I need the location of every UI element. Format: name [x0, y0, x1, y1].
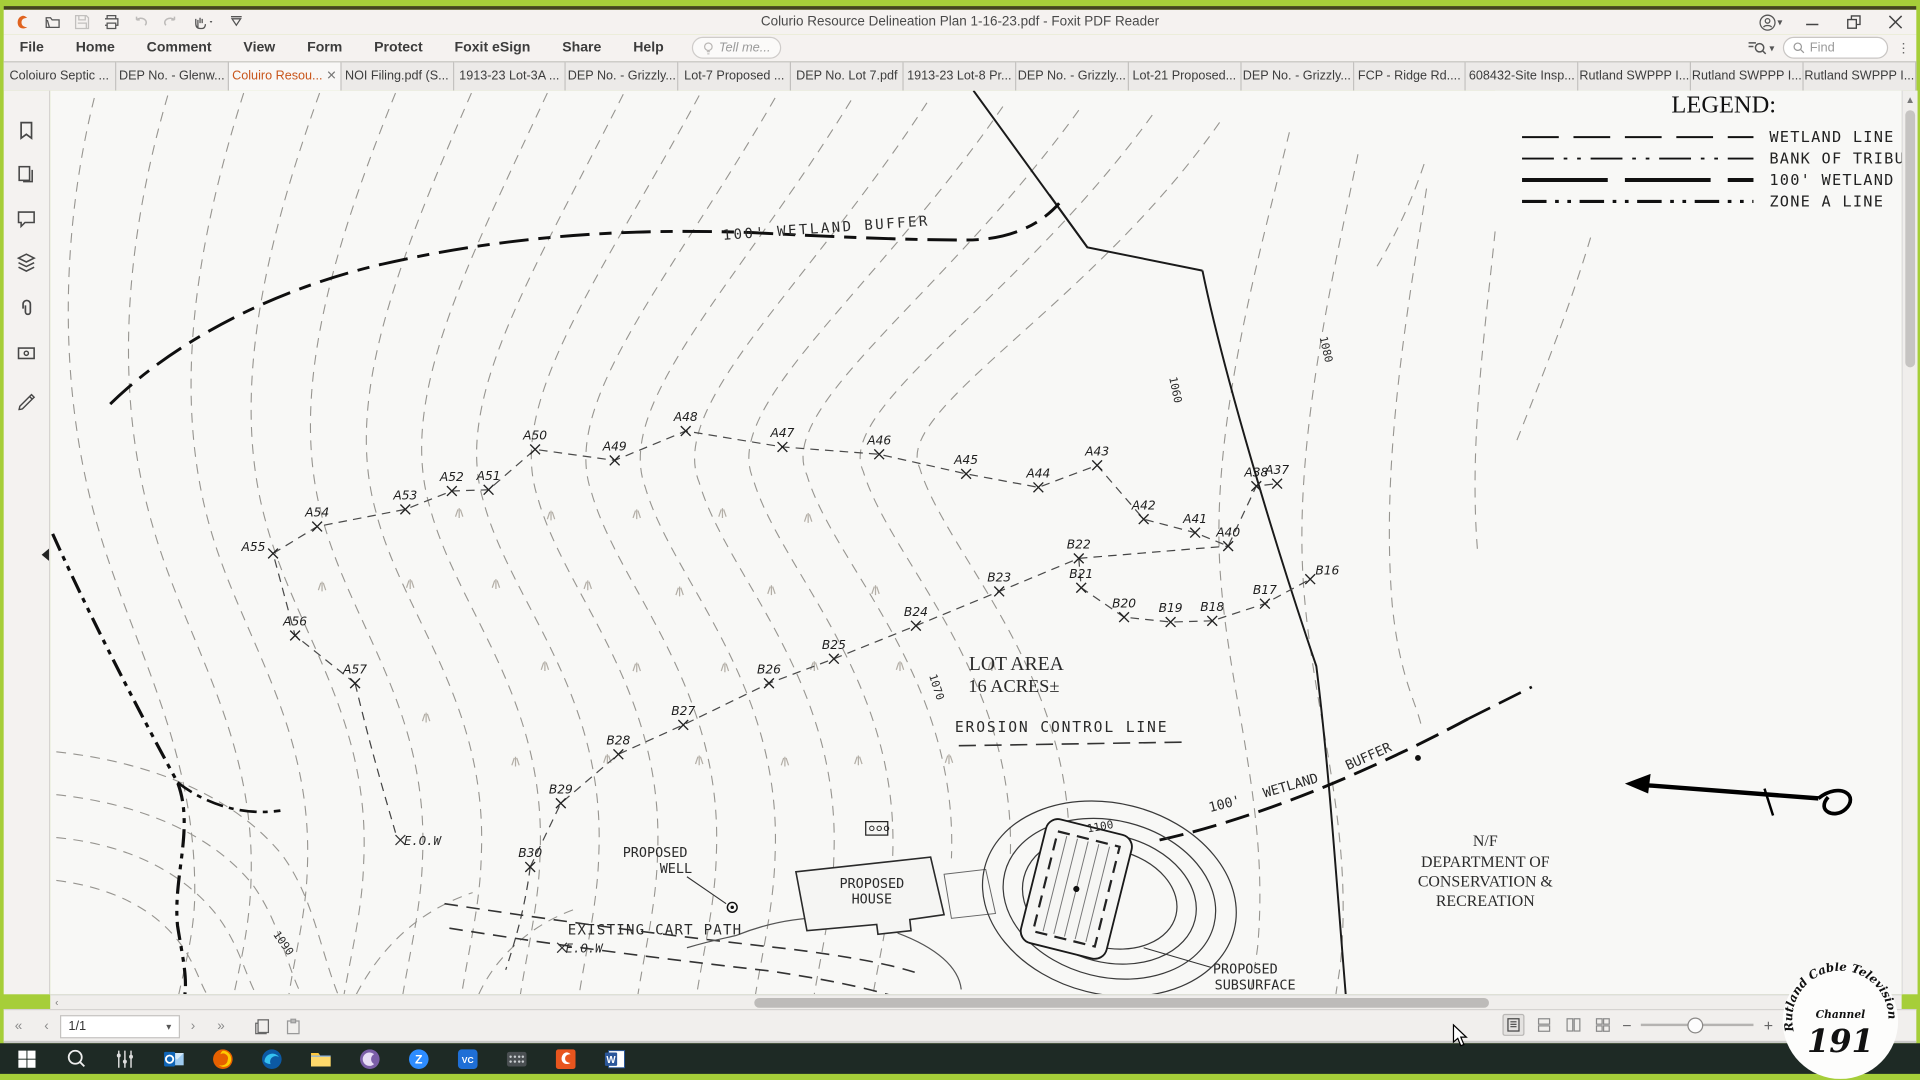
plan-label: EXISTING CART PATH — [568, 922, 743, 938]
tab-label: Lot-21 Proposed... — [1132, 70, 1236, 83]
menu-item-home[interactable]: Home — [60, 40, 131, 55]
document-tab-15[interactable]: Rutland SWPPP I... — [1579, 61, 1692, 90]
plan-label: SUBSURFACE — [1215, 978, 1296, 993]
redo-icon[interactable] — [162, 13, 179, 30]
document-tab-10[interactable]: DEP No. - Grizzly... — [1016, 61, 1129, 90]
flag-label-b17: B17 — [1253, 583, 1277, 597]
document-tab-13[interactable]: FCP - Ridge Rd.... — [1354, 61, 1467, 90]
legend-entry-label: WETLAND LINE — [1769, 128, 1894, 146]
collapse-panel-arrow[interactable] — [40, 546, 50, 568]
flag-label-a55: A55 — [241, 540, 266, 554]
view-mode-button[interactable]: ▾ — [1747, 39, 1774, 56]
document-tab-5[interactable]: 1913-23 Lot-3A ... — [454, 61, 567, 90]
flag-label-a51: A51 — [476, 469, 501, 483]
plan-label: 100' — [1207, 794, 1242, 816]
document-tab-14[interactable]: 608432-Site Insp... — [1466, 61, 1579, 90]
file-explorer-icon[interactable] — [296, 1043, 345, 1074]
document-tab-7[interactable]: Lot-7 Proposed ... — [679, 61, 792, 90]
tab-label: 1913-23 Lot-3A ... — [459, 70, 559, 83]
document-tab-1[interactable]: Coloiuro Septic ... — [4, 61, 117, 90]
scroll-left-arrow[interactable]: ‹ — [55, 997, 58, 1008]
flag-label-b22: B22 — [1067, 538, 1091, 552]
document-tab-3[interactable]: Coluiro Resou...✕ — [229, 61, 342, 90]
page-dropdown-arrow[interactable]: ▾ — [166, 1021, 171, 1032]
plan-label: WELL — [660, 862, 692, 877]
legend-entry-label: ZONE A LINE — [1769, 192, 1884, 210]
tab-label: DEP No. - Grizzly... — [1243, 70, 1351, 83]
foxit-logo-icon[interactable] — [13, 13, 31, 31]
menu-item-protect[interactable]: Protect — [358, 40, 438, 55]
menu-item-help[interactable]: Help — [617, 40, 679, 55]
svg-text:VC: VC — [462, 1054, 474, 1064]
plan-label: 1080 — [1317, 335, 1336, 364]
minimize-button[interactable] — [1794, 10, 1831, 34]
tab-label: NOI Filing.pdf (S... — [345, 70, 449, 83]
save-icon[interactable] — [73, 13, 90, 30]
flag-label-a49: A49 — [602, 440, 627, 454]
continuous-facing-view-icon[interactable] — [1593, 1015, 1613, 1035]
document-tab-bar: Coloiuro Septic ...DEP No. - Glenw...Col… — [4, 61, 1917, 90]
quick-access-toolbar — [4, 13, 245, 31]
menu-item-form[interactable]: Form — [291, 40, 358, 55]
taskbar-search-icon[interactable] — [51, 1043, 100, 1074]
flag-label-b23: B23 — [987, 571, 1011, 585]
plan-legend: LEGEND:WETLAND LINEBANK OF TRIBUTAR100' … — [1495, 91, 1902, 226]
scroll-up-arrow[interactable]: ▲ — [1905, 94, 1915, 105]
flag-label-a56: A56 — [282, 615, 307, 629]
plan-label: 1090 — [270, 929, 296, 958]
snapshot-icon[interactable] — [253, 1017, 271, 1035]
flag-label-a45: A45 — [953, 453, 978, 467]
flag-label-b21: B21 — [1069, 567, 1093, 581]
customize-toolbar-icon[interactable] — [228, 13, 245, 30]
legend-title: LEGEND: — [1671, 92, 1776, 119]
plan-label: DEPARTMENT OF — [1421, 854, 1550, 871]
pdf-page-canvas[interactable]: A57A56A55A54A53A52A51A50A49A48A47A46A45A… — [50, 91, 1901, 995]
plan-label: PROPOSED — [839, 877, 904, 892]
plan-label: EROSION CONTROL LINE — [955, 719, 1169, 736]
tab-label: Rutland SWPPP I... — [1804, 70, 1914, 83]
close-button[interactable] — [1877, 10, 1914, 34]
plan-label: LOT AREA — [969, 654, 1064, 675]
layers-panel-icon[interactable] — [16, 252, 37, 279]
word-icon[interactable]: W — [590, 1043, 639, 1074]
flag-label-a37: A37 — [1264, 463, 1289, 477]
plan-label: 16 ACRES± — [968, 676, 1059, 696]
flag-label-b16: B16 — [1315, 563, 1339, 577]
horizontal-scrollbar[interactable]: ‹ — [50, 994, 1901, 1010]
tab-label: DEP No. - Glenw... — [119, 70, 225, 83]
menu-item-foxit-esign[interactable]: Foxit eSign — [439, 40, 547, 55]
vertical-scrollbar[interactable]: ▲ — [1902, 91, 1918, 995]
zoom-slider-thumb[interactable] — [1688, 1018, 1704, 1034]
plan-arrow-symbol — [1625, 774, 1851, 816]
tab-label: Rutland SWPPP I... — [1692, 70, 1802, 83]
page-number-box[interactable]: 1/1 ▾ — [60, 1014, 180, 1037]
logo-channel-text: Channel — [1816, 1008, 1866, 1021]
plan-label: PROPOSED — [623, 846, 688, 861]
zoom-app-icon[interactable]: Z — [394, 1043, 443, 1074]
outlook-icon[interactable] — [149, 1043, 198, 1074]
mouse-cursor — [1452, 1024, 1469, 1048]
flag-label-a52: A52 — [439, 470, 464, 484]
svg-text:Z: Z — [415, 1052, 423, 1066]
comments-panel-icon[interactable] — [16, 208, 37, 235]
document-tab-9[interactable]: 1913-23 Lot-8 Pr... — [904, 61, 1017, 90]
account-button[interactable]: ▾ — [1752, 10, 1789, 34]
plan-label: HOUSE — [852, 893, 893, 908]
task-view-icon[interactable] — [100, 1043, 149, 1074]
flag-label-a50: A50 — [522, 429, 547, 443]
vertical-scroll-thumb[interactable] — [1905, 110, 1915, 367]
document-tab-2[interactable]: DEP No. - Glenw... — [116, 61, 229, 90]
plan-label: E.O.W — [404, 834, 442, 848]
flag-label-b26: B26 — [757, 662, 781, 676]
plan-label: WETLAND — [1262, 771, 1321, 801]
search-icon — [1793, 42, 1805, 54]
flag-label-a42: A42 — [1131, 498, 1156, 512]
flag-label-b28: B28 — [606, 733, 630, 747]
clipboard-icon[interactable] — [284, 1017, 302, 1035]
menu-item-share[interactable]: Share — [546, 40, 617, 55]
zoom-out-button[interactable]: − — [1622, 1016, 1631, 1034]
open-file-icon[interactable] — [44, 13, 61, 30]
flag-label-b30: B30 — [518, 846, 542, 860]
firefox-icon[interactable] — [198, 1043, 247, 1074]
window-title: Colurio Resource Delineation Plan 1-16-2… — [4, 15, 1917, 30]
document-tab-16[interactable]: Rutland SWPPP I... — [1691, 61, 1804, 90]
document-tab-8[interactable]: DEP No. Lot 7.pdf — [791, 61, 904, 90]
title-bar: Colurio Resource Delineation Plan 1-16-2… — [4, 10, 1917, 34]
tab-label: Rutland SWPPP I... — [1579, 70, 1689, 83]
foxit-taskbar-icon[interactable] — [541, 1043, 590, 1074]
flag-label-b18: B18 — [1200, 600, 1224, 614]
flag-label-b19: B19 — [1159, 601, 1183, 615]
flag-label-a57: A57 — [342, 662, 367, 676]
vc-app-icon[interactable]: VC — [443, 1043, 492, 1074]
flag-label-a48: A48 — [673, 410, 698, 424]
horizontal-scroll-thumb[interactable] — [754, 998, 1489, 1008]
tell-me-search[interactable]: Tell me... — [692, 37, 782, 59]
svg-text:W: W — [606, 1054, 616, 1065]
tab-label: DEP No. - Grizzly... — [1018, 70, 1126, 83]
edge-icon[interactable] — [247, 1043, 296, 1074]
menu-item-view[interactable]: View — [228, 40, 292, 55]
tab-label: FCP - Ridge Rd.... — [1358, 70, 1461, 83]
last-page-button[interactable]: » — [206, 1019, 236, 1034]
document-tab-11[interactable]: Lot-21 Proposed... — [1129, 61, 1242, 90]
plan-label: PROPOSED — [1213, 962, 1278, 977]
attachments-panel-icon[interactable] — [16, 298, 37, 325]
flag-label-a43: A43 — [1084, 445, 1109, 459]
bookmark-panel-icon[interactable] — [16, 120, 37, 147]
plan-label: N/F — [1473, 833, 1498, 850]
screen: Colurio Resource Delineation Plan 1-16-2… — [0, 0, 1920, 1080]
navigation-sidebar — [4, 91, 51, 995]
document-tab-17[interactable]: Rutland SWPPP I... — [1804, 61, 1917, 90]
tab-label: Coluiro Resou... — [232, 70, 322, 83]
bulb-icon — [703, 41, 714, 54]
tab-label: Coloiuro Septic ... — [10, 70, 110, 83]
plan-label: E.O.W — [566, 942, 604, 956]
tab-close-icon[interactable]: ✕ — [326, 70, 336, 83]
undo-icon[interactable] — [132, 13, 149, 30]
flag-label-a54: A54 — [304, 506, 329, 520]
tab-label: 608432-Site Insp... — [1469, 70, 1575, 83]
hand-tool-icon[interactable] — [191, 13, 215, 30]
document-tab-6[interactable]: DEP No. - Grizzly... — [566, 61, 679, 90]
plan-label: 1070 — [926, 672, 947, 701]
keyboard-app-icon[interactable] — [492, 1043, 541, 1074]
tab-label: DEP No. Lot 7.pdf — [796, 70, 897, 83]
flag-label-b29: B29 — [549, 782, 573, 796]
single-page-view-icon[interactable] — [1502, 1014, 1524, 1036]
pages-panel-icon[interactable] — [16, 164, 37, 191]
menu-item-comment[interactable]: Comment — [131, 40, 228, 55]
legend-entry-label: 100' WETLAND BUF — [1769, 171, 1901, 189]
continuous-view-icon[interactable] — [1534, 1015, 1554, 1035]
tab-label: DEP No. - Grizzly... — [568, 70, 676, 83]
find-placeholder: Find — [1810, 40, 1835, 55]
plan-label: RECREATION — [1436, 893, 1535, 910]
document-tab-12[interactable]: DEP No. - Grizzly... — [1241, 61, 1354, 90]
print-icon[interactable] — [103, 13, 120, 30]
legend-entry-label: BANK OF TRIBUTAR — [1769, 149, 1901, 167]
purple-app-icon[interactable] — [345, 1043, 394, 1074]
taskbar: Z VC W — [0, 1043, 1920, 1074]
proposed-subsurface-bed — [1018, 817, 1134, 962]
page-indicator: 1/1 — [68, 1019, 86, 1034]
flag-label-a53: A53 — [392, 489, 417, 503]
flag-label-b25: B25 — [822, 638, 846, 652]
flag-label-a46: A46 — [866, 433, 891, 447]
plan-label: 100' WETLAND BUFFER — [722, 213, 930, 243]
flag-label-a41: A41 — [1182, 512, 1207, 526]
menu-bar: FileHomeCommentViewFormProtectFoxit eSig… — [4, 34, 1917, 61]
restore-button[interactable] — [1836, 10, 1873, 34]
tv-channel-watermark: Rutland Cable Television Channel 191 — [1773, 962, 1908, 1080]
flag-label-a40: A40 — [1215, 525, 1240, 539]
zoom-in-button[interactable]: + — [1764, 1016, 1773, 1034]
green-frame-bottom — [0, 1074, 1920, 1080]
logo-number-text: 191 — [1807, 1022, 1874, 1060]
first-page-button[interactable]: « — [4, 1019, 34, 1034]
find-search-box[interactable]: Find — [1783, 37, 1888, 59]
start-button[interactable] — [2, 1043, 51, 1074]
facing-view-icon[interactable] — [1563, 1015, 1583, 1035]
more-options-button[interactable]: ⋮ — [1897, 40, 1910, 56]
prev-page-button[interactable]: ‹ — [33, 1019, 60, 1034]
form-fields-panel-icon[interactable] — [16, 343, 37, 370]
next-page-button[interactable]: › — [180, 1019, 207, 1034]
flag-label-b20: B20 — [1112, 596, 1136, 610]
flag-label-a47: A47 — [769, 426, 794, 440]
menu-item-file[interactable]: File — [4, 40, 60, 55]
plan-label: 1060 — [1166, 376, 1184, 405]
flag-label-b24: B24 — [904, 605, 928, 619]
tab-label: 1913-23 Lot-8 Pr... — [907, 70, 1011, 83]
document-tab-4[interactable]: NOI Filing.pdf (S... — [341, 61, 454, 90]
flag-label-b27: B27 — [671, 704, 695, 718]
tab-label: Lot-7 Proposed ... — [684, 70, 784, 83]
flag-label-a44: A44 — [1025, 467, 1050, 481]
signature-panel-icon[interactable] — [16, 389, 37, 416]
plan-label: CONSERVATION & — [1418, 874, 1554, 891]
zoom-slider[interactable] — [1641, 1024, 1754, 1026]
